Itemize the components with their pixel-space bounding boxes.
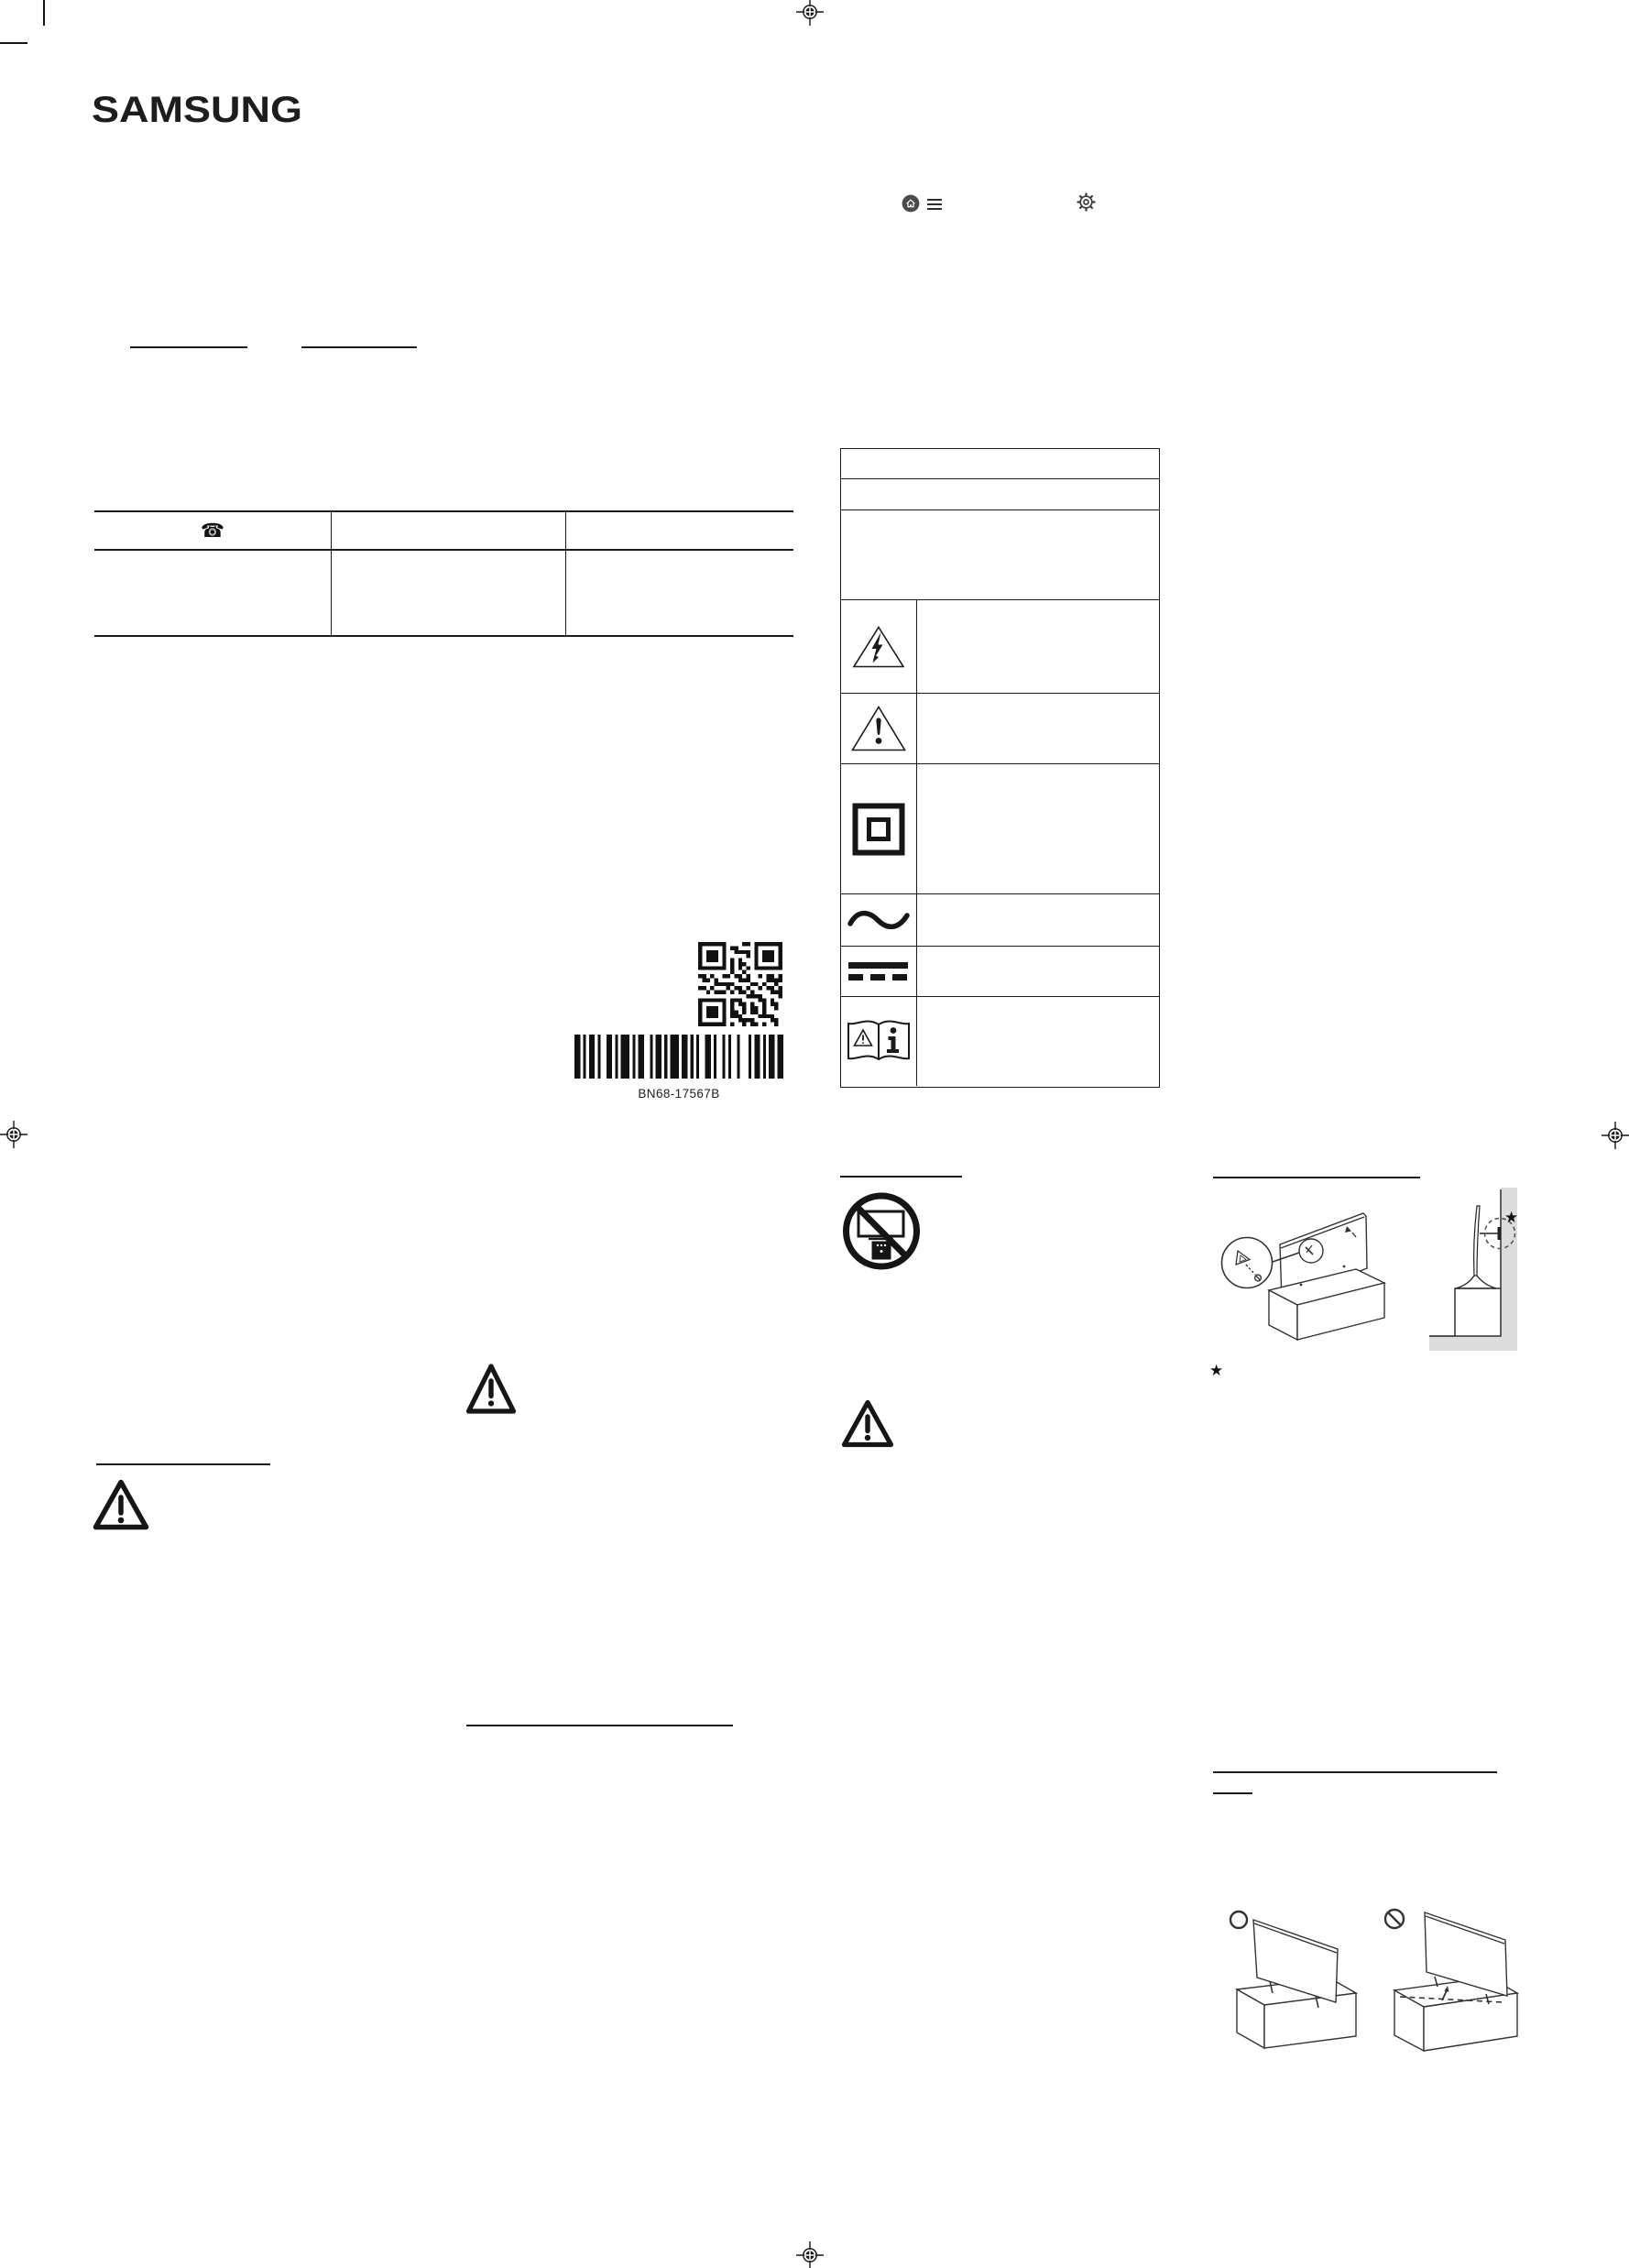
qr-code	[698, 942, 782, 1026]
dc-voltage-bars-icon	[841, 947, 917, 996]
section-heading-underline	[466, 1725, 733, 1726]
prohibited-circle-icon	[1385, 1910, 1404, 1928]
menu-icon	[927, 199, 942, 210]
table-cell	[917, 997, 1159, 1086]
table-row	[841, 449, 1159, 478]
warning-triangle-icon	[93, 1476, 149, 1533]
telephone-icon: ☎	[94, 512, 331, 549]
table-row	[841, 478, 1159, 509]
table-row	[841, 946, 1159, 996]
registration-mark-icon	[796, 2241, 824, 2268]
anti-tip-bracket-illustration	[1219, 1202, 1388, 1342]
section-heading-underline	[840, 1176, 962, 1178]
section-heading-underline	[96, 1463, 270, 1465]
table-divider	[94, 549, 793, 551]
link-underline[interactable]	[130, 346, 247, 348]
registration-mark-icon	[1602, 1122, 1629, 1149]
safety-symbols-table	[840, 448, 1160, 1088]
manual-page: SAMSUNG	[0, 0, 1629, 2268]
table-cell	[917, 894, 1159, 946]
table-divider	[331, 512, 332, 635]
section-heading-underline	[1213, 1177, 1420, 1178]
tv-at-back-of-cabinet-illustration	[1382, 1906, 1528, 2064]
table-row	[841, 599, 1159, 693]
gear-icon	[1077, 192, 1096, 212]
trim-mark	[43, 0, 45, 26]
refer-to-manual-icon	[841, 997, 917, 1086]
link-underline[interactable]	[301, 346, 417, 348]
table-row	[841, 996, 1159, 1086]
table-row	[841, 893, 1159, 946]
table-cell	[917, 947, 1159, 996]
section-heading-underline	[1213, 1792, 1252, 1794]
part-number-label: BN68-17567B	[574, 1087, 783, 1101]
samsung-logo: SAMSUNG	[92, 89, 302, 131]
allowed-circle-icon	[1230, 1912, 1247, 1928]
warning-triangle-icon	[465, 1361, 517, 1418]
table-cell	[917, 600, 1159, 693]
registration-mark-icon	[796, 0, 824, 26]
table-cell	[917, 764, 1159, 893]
table-cell	[917, 694, 1159, 763]
class-ii-double-square-icon	[841, 764, 917, 893]
trim-mark	[0, 42, 27, 44]
tv-at-front-of-cabinet-illustration	[1226, 1908, 1363, 2059]
star-icon: ★	[1504, 1209, 1518, 1226]
ac-voltage-wave-icon	[841, 894, 917, 946]
warning-triangle-icon	[841, 1397, 894, 1451]
table-divider	[565, 512, 566, 635]
support-contact-table: ☎	[94, 510, 793, 637]
high-voltage-triangle-icon	[841, 600, 917, 693]
footnote-star-icon: ★	[1209, 1362, 1223, 1380]
home-icon	[902, 194, 920, 213]
no-tv-on-unstable-furniture-icon	[841, 1189, 922, 1273]
table-row	[841, 693, 1159, 763]
tv-near-wall-side-view-illustration: ★	[1427, 1186, 1519, 1353]
table-row	[841, 763, 1159, 893]
table-row	[841, 509, 1159, 599]
section-heading-underline	[1213, 1771, 1497, 1773]
registration-mark-icon	[0, 1121, 27, 1148]
caution-triangle-icon	[841, 694, 917, 763]
barcode	[574, 1035, 783, 1079]
